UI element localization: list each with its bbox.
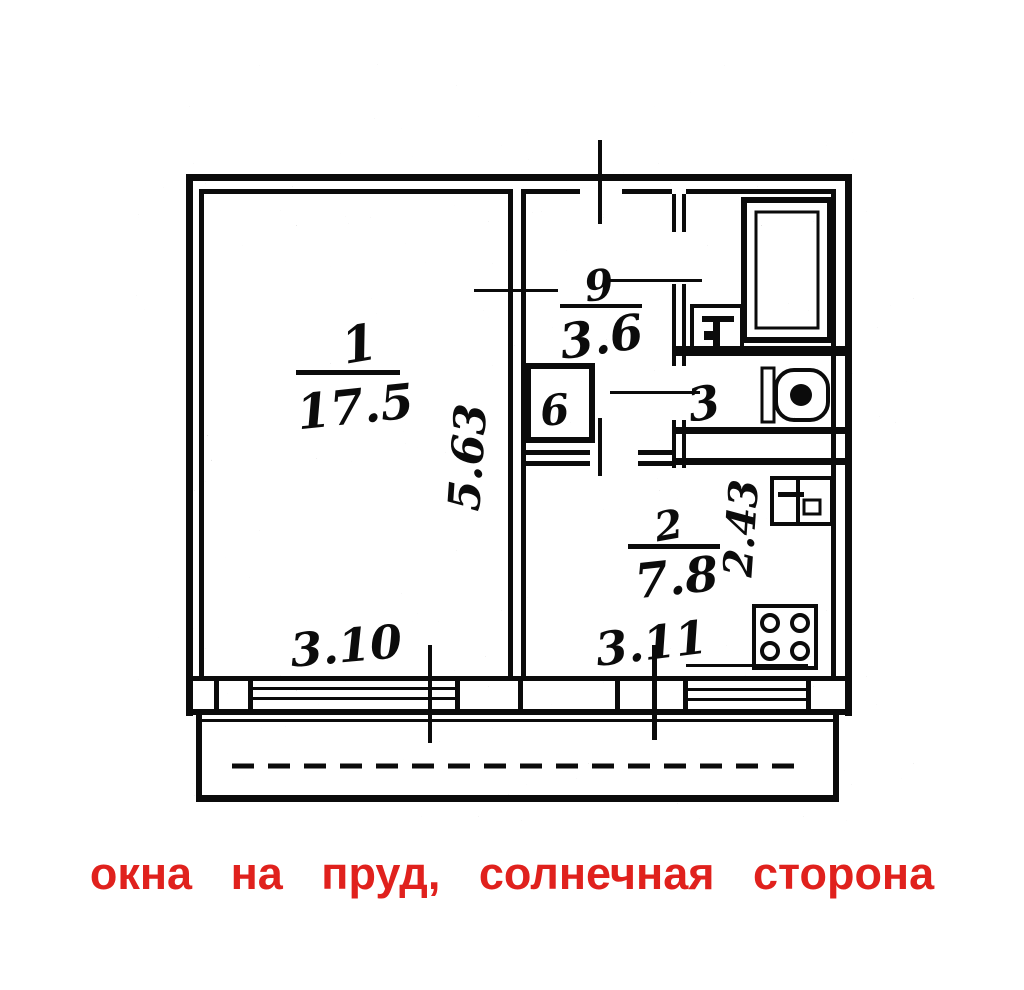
- kitchen-tap-bar: [778, 492, 804, 497]
- kitchen-area: 7.8: [632, 546, 721, 610]
- floor-plan: 1 17.5 9 3.6 6 3 2 7.8 3.10 3.11 5.63 2.…: [0, 0, 1024, 990]
- wall-hall-kitchen-a2: [526, 461, 590, 466]
- wall-top-inner-bath: [686, 189, 831, 194]
- wall-top-inner-hall-left: [526, 189, 580, 194]
- wall-hall-bath-top-b: [682, 194, 686, 232]
- balcony-front-edge: [196, 795, 839, 802]
- band-divider-5: [615, 676, 620, 715]
- scanned-floor-plan-page: 1 17.5 9 3.6 6 3 2 7.8 3.10 3.11 5.63 2.…: [0, 0, 1024, 990]
- closet-number: 6: [538, 384, 572, 436]
- caption-text: окна на пруд, солнечная сторона: [0, 848, 1024, 900]
- kitchen-sink-divider: [796, 478, 800, 524]
- living-window-line-1: [250, 687, 457, 690]
- hall-area: 3.6: [556, 304, 646, 371]
- wall-left-outer: [186, 174, 193, 716]
- dim-living-width: 3.10: [288, 614, 404, 678]
- balcony-left-edge: [196, 715, 202, 801]
- kitchen-window-line-1: [686, 688, 808, 691]
- entry-axis-line: [598, 140, 602, 224]
- wall-top-inner-living: [199, 189, 508, 194]
- living-window-line-2: [250, 697, 457, 700]
- dim-living-depth: 5.63: [439, 402, 497, 512]
- hall-dim-line-right: [610, 279, 702, 282]
- band-divider-1: [214, 676, 219, 715]
- washbasin-tap-leg: [713, 316, 720, 346]
- band-divider-3: [455, 676, 460, 715]
- wall-living-right-a: [508, 189, 513, 679]
- band-divider-2: [248, 676, 253, 715]
- wall-hall-wc-low-a: [672, 420, 676, 468]
- wall-left-inner: [199, 189, 204, 677]
- wall-hall-kitchen-b1: [638, 450, 676, 455]
- dim-kitchen-depth: 2.43: [714, 478, 768, 579]
- kitchen-door-axis: [598, 418, 602, 476]
- balcony-inner-line: [202, 719, 833, 722]
- toilet-drain: [790, 384, 812, 406]
- wall-kitchen-top: [676, 458, 852, 465]
- wall-top-outer: [186, 174, 852, 181]
- wall-hall-kitchen-a1: [526, 450, 590, 455]
- balcony-right-edge: [833, 715, 839, 801]
- kitchen-window-line-2: [686, 698, 808, 701]
- band-divider-7: [806, 676, 811, 715]
- band-divider-4: [518, 676, 523, 715]
- wall-hall-kitchen-b2: [638, 461, 676, 466]
- wall-top-inner-hall-right: [622, 189, 672, 194]
- wall-hall-bath-mid-a: [672, 284, 676, 366]
- wall-right-outer: [845, 174, 852, 716]
- bottom-tick-left: [428, 645, 432, 743]
- washbasin-tap-nub: [704, 331, 714, 340]
- band-divider-6: [683, 676, 688, 715]
- hall-dim-line-left: [474, 289, 558, 292]
- wall-hall-bath-top-a: [672, 194, 676, 232]
